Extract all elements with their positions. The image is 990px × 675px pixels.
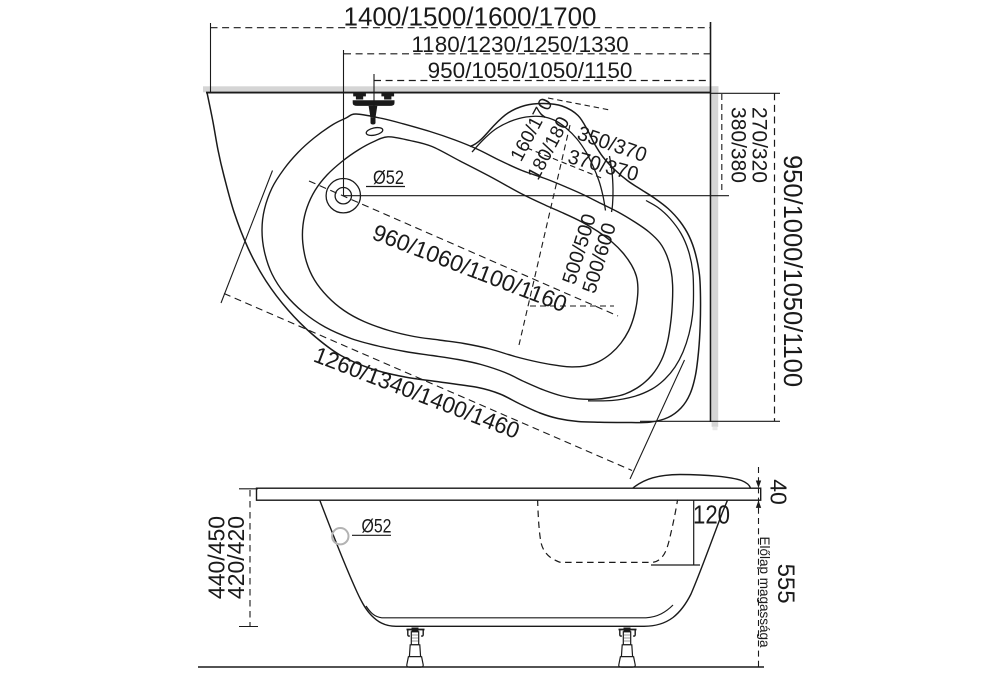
svg-text:380/380: 380/380 [727, 107, 750, 183]
svg-text:555: 555 [772, 564, 799, 604]
svg-text:1180/1230/1250/1330: 1180/1230/1250/1330 [411, 32, 628, 57]
svg-text:950/1000/1050/1100: 950/1000/1050/1100 [778, 155, 806, 387]
svg-text:440/450: 440/450 [204, 516, 230, 599]
svg-text:1400/1500/1600/1700: 1400/1500/1600/1700 [343, 2, 596, 32]
svg-text:Előlap magassága: Előlap magassága [757, 537, 772, 648]
svg-text:270/320: 270/320 [748, 107, 771, 183]
svg-text:950/1050/1050/1150: 950/1050/1050/1150 [428, 58, 633, 83]
svg-text:Ø52: Ø52 [373, 167, 404, 189]
svg-text:40: 40 [766, 479, 792, 505]
svg-text:120: 120 [693, 500, 730, 530]
svg-text:Ø52: Ø52 [362, 517, 392, 538]
